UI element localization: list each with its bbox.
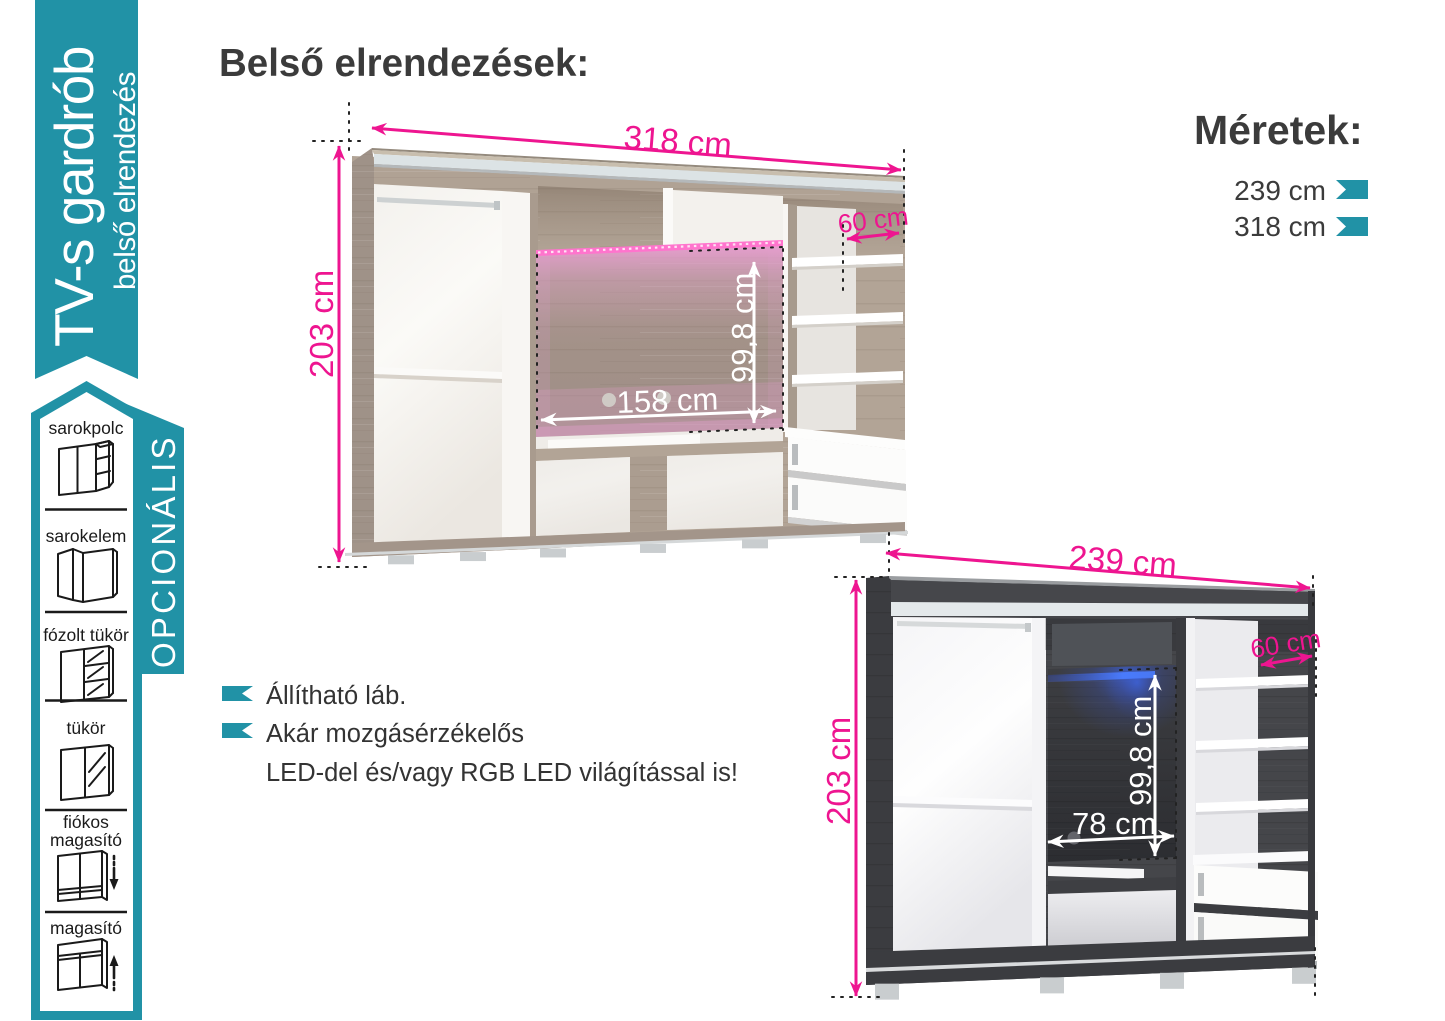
svg-text:magasító: magasító xyxy=(50,918,122,938)
svg-text:sarokelem: sarokelem xyxy=(46,526,127,546)
svg-text:magasító: magasító xyxy=(50,830,122,850)
svg-text:tükör: tükör xyxy=(67,718,106,738)
svg-text:belső elrendezés: belső elrendezés xyxy=(109,72,142,290)
svg-text:99,8 cm: 99,8 cm xyxy=(725,273,760,383)
svg-text:158 cm: 158 cm xyxy=(616,381,719,420)
svg-text:203 cm: 203 cm xyxy=(820,717,857,825)
svg-text:78 cm: 78 cm xyxy=(1072,806,1156,841)
svg-text:fiókos: fiókos xyxy=(63,812,109,832)
svg-text:Akár mozgásérzékelős: Akár mozgásérzékelős xyxy=(266,720,524,748)
svg-text:Méretek:: Méretek: xyxy=(1194,107,1363,153)
svg-text:fózolt tükör: fózolt tükör xyxy=(43,625,129,645)
svg-text:318 cm: 318 cm xyxy=(1234,211,1326,242)
svg-text:Belső elrendezések:: Belső elrendezések: xyxy=(219,42,589,85)
svg-text:TV-s gardrób: TV-s gardrób xyxy=(43,47,105,347)
svg-text:OPCIONÁLIS: OPCIONÁLIS xyxy=(145,434,182,668)
svg-text:Állítható láb.: Állítható láb. xyxy=(266,681,406,710)
svg-text:239 cm: 239 cm xyxy=(1234,175,1326,206)
svg-text:99,8 cm: 99,8 cm xyxy=(1123,696,1158,806)
svg-text:sarokpolc: sarokpolc xyxy=(49,418,124,438)
svg-text:203 cm: 203 cm xyxy=(303,270,340,378)
svg-text:LED-del és/vagy RGB LED világí: LED-del és/vagy RGB LED világítással is! xyxy=(266,759,738,787)
